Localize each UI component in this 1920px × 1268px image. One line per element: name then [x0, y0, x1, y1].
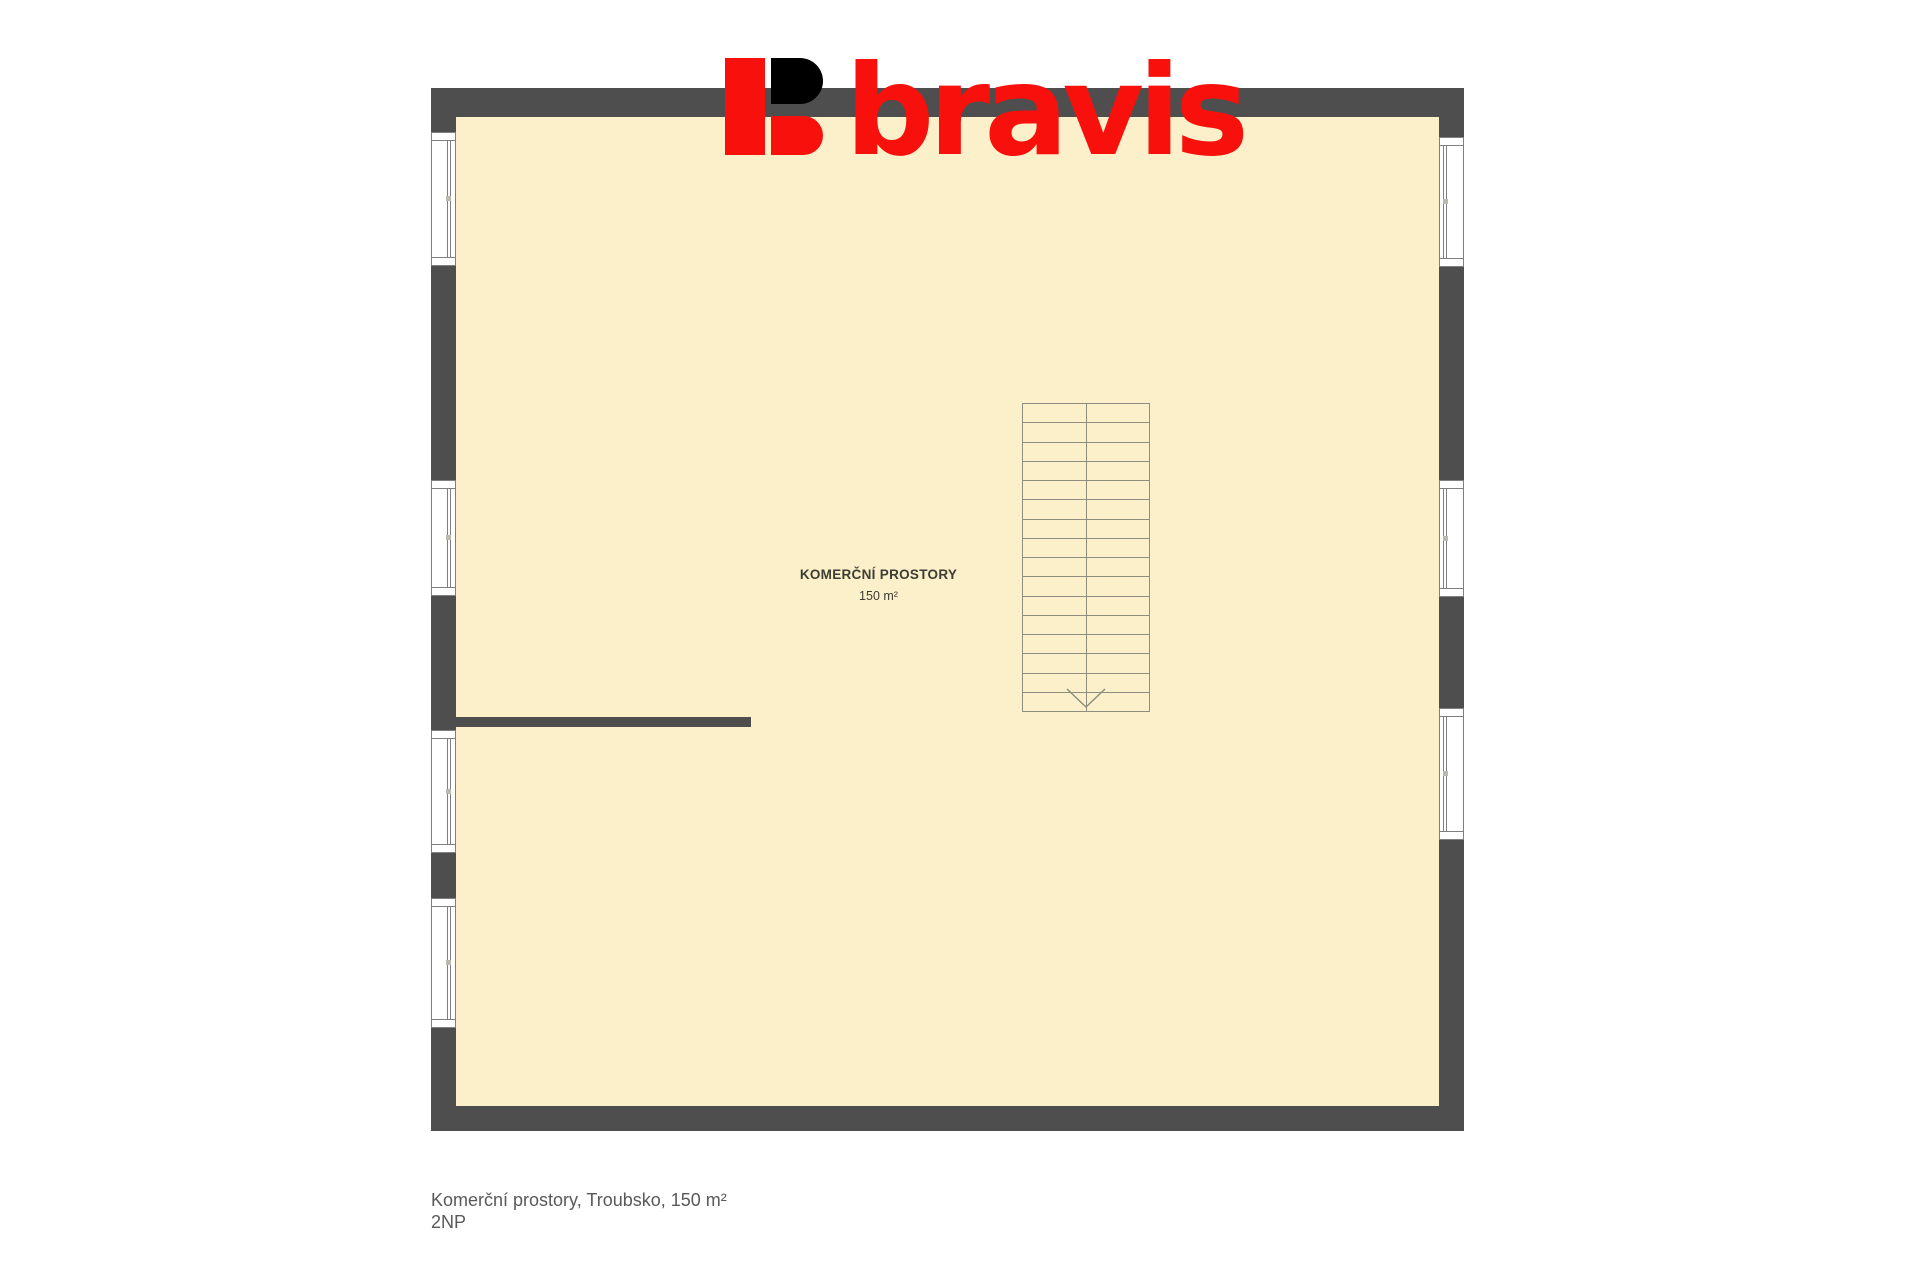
window-frame-tick	[1440, 145, 1463, 146]
window-frame-tick	[432, 140, 455, 141]
room-label: KOMERČNÍ PROSTORY 150 m²	[752, 567, 1005, 603]
logo-b-bottom-half	[771, 116, 823, 155]
stair-direction-arrow-icon	[1023, 404, 1149, 711]
window-frame-tick	[432, 844, 455, 845]
window-frame-tick	[1440, 588, 1463, 589]
window-frame-tick	[1440, 716, 1463, 717]
window-symbol	[431, 898, 456, 1028]
logo-b-top-half	[771, 58, 823, 104]
floor-area	[456, 117, 1439, 1106]
window-handle	[446, 789, 451, 794]
window-frame-tick	[432, 738, 455, 739]
window-frame-tick	[432, 587, 455, 588]
interior-partition-wall	[447, 717, 751, 727]
window-handle	[446, 196, 451, 201]
window-symbol	[431, 480, 456, 596]
window-frame-tick	[432, 906, 455, 907]
window-handle	[1443, 771, 1448, 776]
window-handle	[446, 535, 451, 540]
staircase	[1022, 403, 1150, 712]
window-symbol	[431, 132, 456, 266]
logo-red-bar	[725, 58, 765, 155]
window-frame-tick	[1440, 831, 1463, 832]
logo-wordmark: bravis	[845, 49, 1243, 174]
window-symbol	[1439, 708, 1464, 840]
room-area-label: 150 m²	[752, 589, 1005, 603]
caption-line-2: 2NP	[431, 1211, 727, 1233]
window-handle	[1443, 199, 1448, 204]
listing-caption: Komerční prostory, Troubsko, 150 m² 2NP	[431, 1189, 727, 1233]
window-symbol	[431, 730, 456, 853]
window-frame-tick	[1440, 258, 1463, 259]
room-name-label: KOMERČNÍ PROSTORY	[752, 567, 1005, 582]
window-frame-tick	[1440, 488, 1463, 489]
window-symbol	[1439, 480, 1464, 597]
window-symbol	[1439, 137, 1464, 267]
window-frame-tick	[432, 488, 455, 489]
window-frame-tick	[432, 1019, 455, 1020]
caption-line-1: Komerční prostory, Troubsko, 150 m²	[431, 1189, 727, 1211]
window-handle	[446, 960, 451, 965]
window-frame-tick	[432, 257, 455, 258]
window-handle	[1443, 536, 1448, 541]
